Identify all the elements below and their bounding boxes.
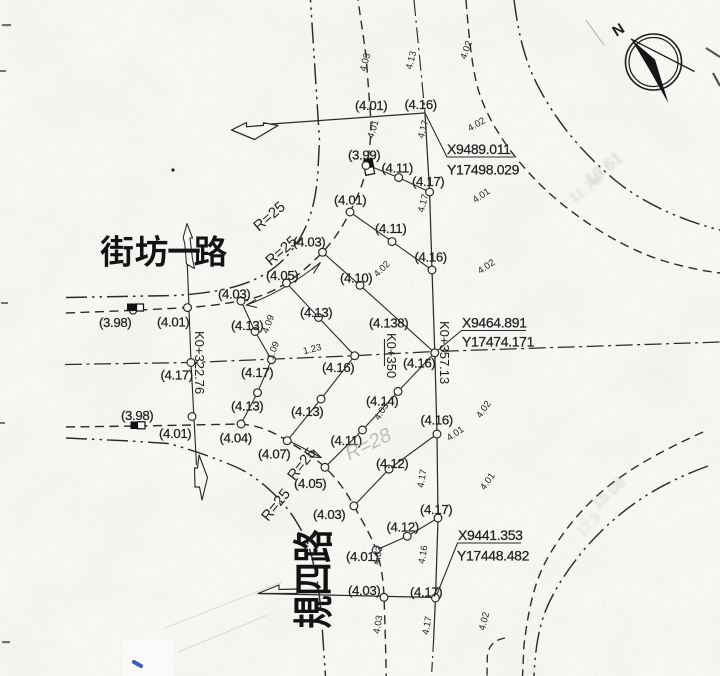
svg-text:(4.01): (4.01) <box>159 426 191 441</box>
svg-text:(4.138): (4.138) <box>369 316 408 331</box>
svg-text:(4.17): (4.17) <box>412 174 444 189</box>
svg-text:(4.17): (4.17) <box>410 585 442 600</box>
svg-text:(4.03): (4.03) <box>313 507 345 522</box>
svg-text:(4.11): (4.11) <box>375 221 406 236</box>
svg-text:(4.16): (4.16) <box>415 250 447 265</box>
svg-text:(4.17): (4.17) <box>241 365 273 380</box>
svg-text:X9489.011: X9489.011 <box>447 141 511 157</box>
svg-text:(4.12): (4.12) <box>387 520 419 535</box>
svg-text:(4.13): (4.13) <box>300 305 332 320</box>
svg-text:Y17474.171: Y17474.171 <box>462 334 535 350</box>
svg-text:(3.99): (3.99) <box>348 148 380 163</box>
svg-text:(4.16): (4.16) <box>403 356 435 371</box>
svg-text:Y17448.482: Y17448.482 <box>457 548 530 564</box>
svg-text:(4.10): (4.10) <box>340 271 372 286</box>
svg-text:(4.13): (4.13) <box>231 399 263 414</box>
svg-text:Y17498.029: Y17498.029 <box>447 162 520 178</box>
svg-text:(4.16): (4.16) <box>405 97 437 112</box>
svg-text:(4.01): (4.01) <box>157 315 189 330</box>
svg-text:(4.13): (4.13) <box>231 318 263 333</box>
svg-text:K0+322.76: K0+322.76 <box>192 331 207 394</box>
svg-text:(4.17): (4.17) <box>420 502 452 517</box>
svg-text:X9464.891: X9464.891 <box>462 315 527 331</box>
svg-text:(4.07): (4.07) <box>258 447 290 462</box>
svg-text:(4.13): (4.13) <box>291 404 323 419</box>
svg-text:(3.98): (3.98) <box>99 315 131 330</box>
svg-text:(4.01): (4.01) <box>355 98 387 113</box>
svg-text:(4.16): (4.16) <box>322 360 354 375</box>
svg-text:X9441.353: X9441.353 <box>458 527 523 543</box>
svg-text:K0+357.13: K0+357.13 <box>437 321 452 384</box>
svg-text:(4.01): (4.01) <box>334 193 366 208</box>
svg-text:(3.98): (3.98) <box>121 408 153 423</box>
svg-text:(4.12): (4.12) <box>376 456 408 471</box>
svg-text:K0+350: K0+350 <box>384 333 399 378</box>
svg-text:(4.03): (4.03) <box>218 287 250 302</box>
svg-text:(4.03): (4.03) <box>348 583 380 598</box>
svg-text:(4.04): (4.04) <box>220 431 252 446</box>
svg-text:(4.17): (4.17) <box>161 368 193 383</box>
svg-text:(4.05): (4.05) <box>266 268 298 283</box>
svg-text:(4.11): (4.11) <box>382 161 413 176</box>
svg-text:(4.16): (4.16) <box>421 413 453 428</box>
